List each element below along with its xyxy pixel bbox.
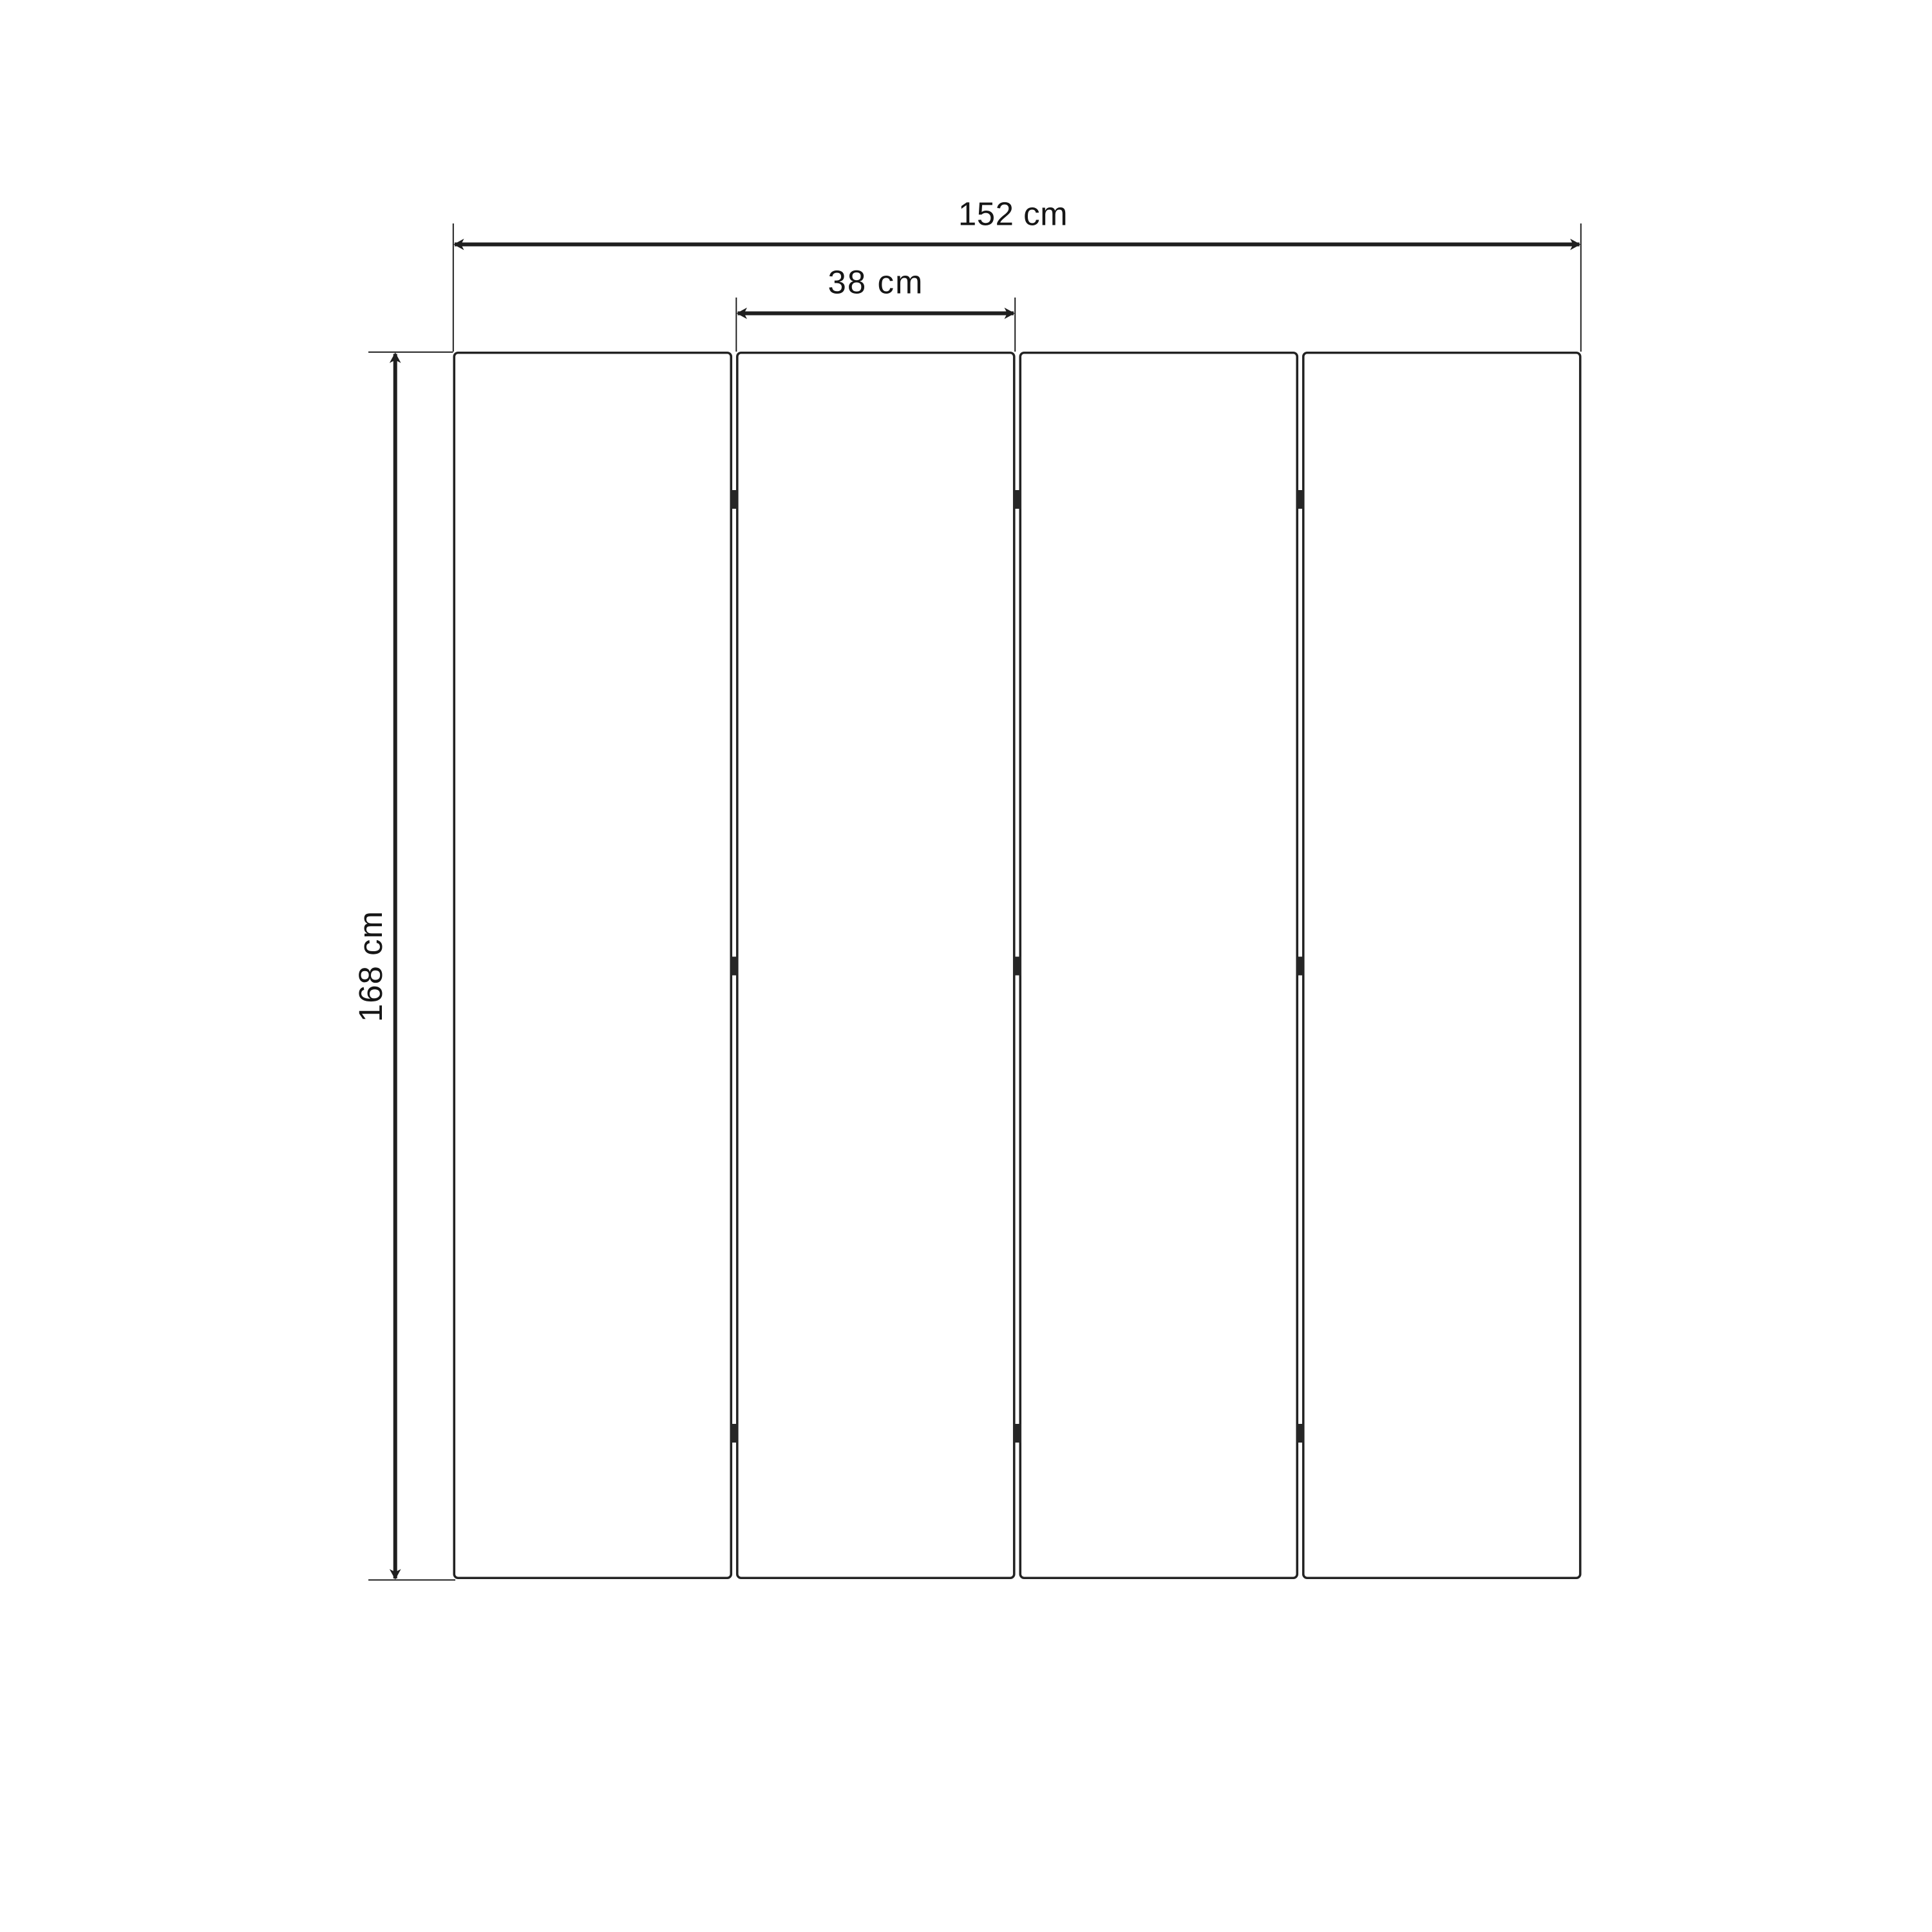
svg-text:168 cm: 168 cm <box>352 911 389 1022</box>
svg-text:152 cm: 152 cm <box>958 196 1068 232</box>
svg-text:38 cm: 38 cm <box>828 264 924 301</box>
